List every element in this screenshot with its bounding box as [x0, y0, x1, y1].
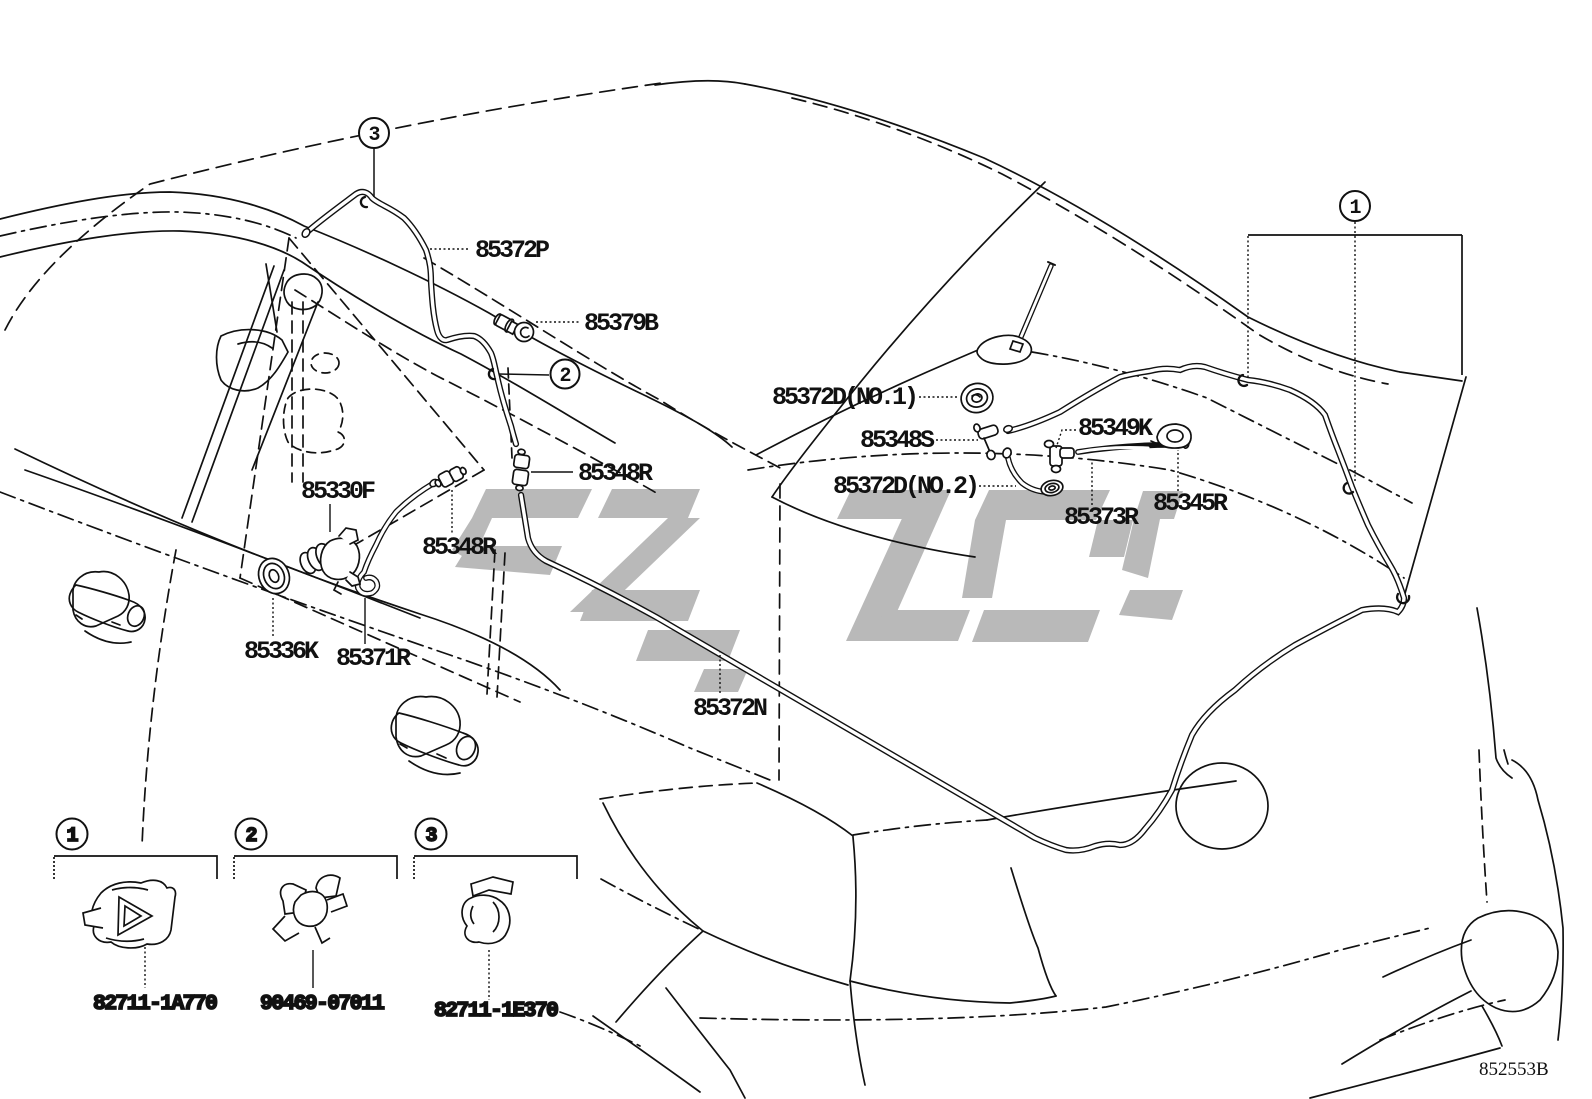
svg-text:85379B: 85379B: [584, 309, 659, 338]
svg-text:852553B: 852553B: [1479, 1059, 1549, 1080]
svg-text:85348R: 85348R: [422, 533, 497, 562]
svg-text:85349K: 85349K: [1078, 414, 1153, 443]
svg-text:85373R: 85373R: [1064, 503, 1139, 532]
svg-text:85372D(NO.2): 85372D(NO.2): [833, 472, 977, 501]
svg-text:82711-1A770: 82711-1A770: [93, 992, 217, 1016]
svg-text:3: 3: [426, 825, 438, 848]
svg-text:85330F: 85330F: [301, 477, 375, 506]
svg-text:85372P: 85372P: [475, 236, 549, 265]
svg-text:85345R: 85345R: [1153, 489, 1228, 518]
svg-text:85372D(NO.1): 85372D(NO.1): [772, 383, 916, 412]
svg-text:1: 1: [1350, 197, 1362, 220]
svg-text:1: 1: [67, 825, 79, 848]
svg-text:90469-07011: 90469-07011: [260, 992, 384, 1016]
svg-text:85372N: 85372N: [693, 694, 767, 723]
svg-text:82711-1E370: 82711-1E370: [434, 999, 558, 1023]
svg-text:2: 2: [246, 825, 258, 848]
svg-text:85348R: 85348R: [578, 459, 653, 488]
svg-text:2: 2: [560, 365, 572, 388]
svg-text:85336K: 85336K: [244, 637, 319, 666]
svg-text:85371R: 85371R: [336, 644, 411, 673]
svg-text:85348S: 85348S: [860, 426, 935, 455]
svg-text:3: 3: [369, 124, 381, 147]
